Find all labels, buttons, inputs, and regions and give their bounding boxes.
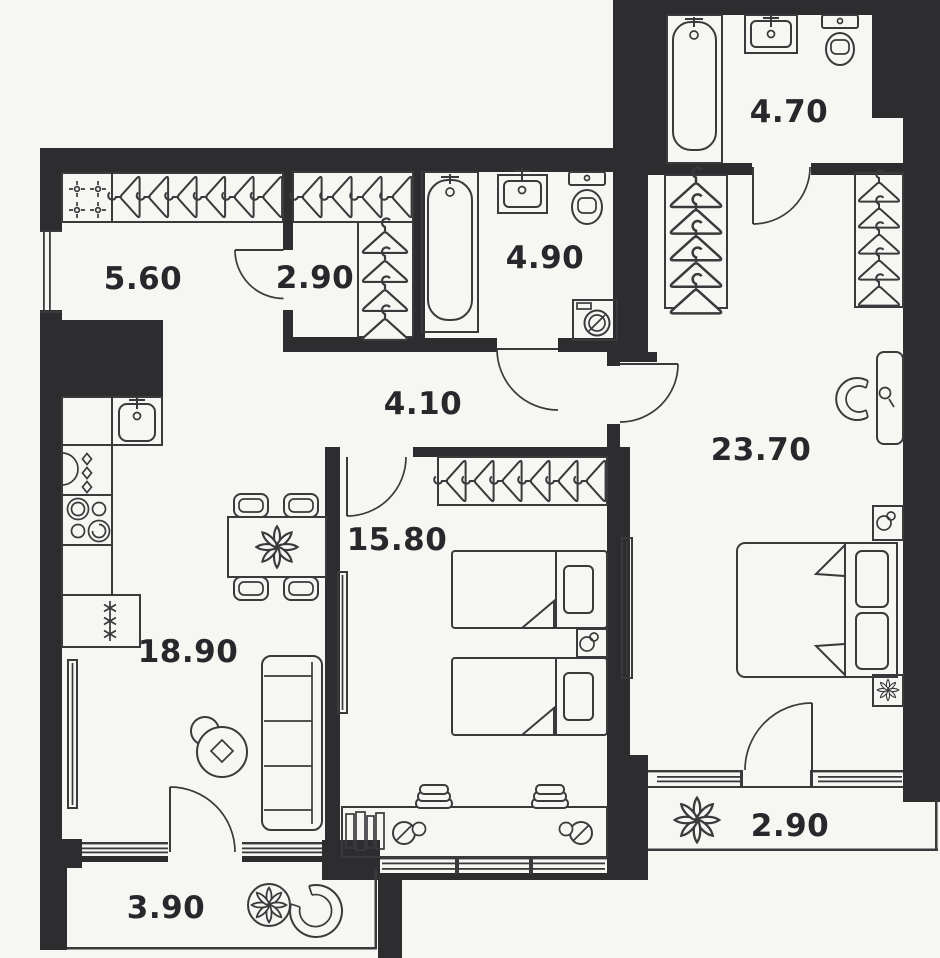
dining-chair bbox=[234, 577, 268, 600]
double-bed bbox=[737, 543, 897, 677]
room-label-hallway: 5.60 bbox=[104, 261, 183, 297]
room-label-bathroom: 4.90 bbox=[506, 240, 585, 276]
plant-flower-icon bbox=[252, 888, 287, 923]
sofa bbox=[262, 656, 322, 830]
dining-chair bbox=[284, 494, 318, 517]
room-label-balcony: 3.90 bbox=[127, 890, 206, 926]
plant-flower-icon bbox=[256, 526, 297, 567]
room-label-kitchen-living: 18.90 bbox=[138, 634, 239, 670]
room-label-bathroom-2: 4.70 bbox=[750, 94, 829, 130]
room-label-bedroom: 15.80 bbox=[347, 522, 448, 558]
dining-chair bbox=[284, 577, 318, 600]
plant-flower-icon bbox=[675, 798, 720, 843]
dining-chair bbox=[234, 494, 268, 517]
floor-plan-canvas: 5.60 2.90 4.90 4.70 4.10 15.80 23.70 18.… bbox=[0, 0, 940, 958]
desk-chair bbox=[416, 785, 452, 808]
room-label-loggia: 2.90 bbox=[751, 808, 830, 844]
room-label-wardrobe: 2.90 bbox=[276, 260, 355, 296]
plant-flower-icon bbox=[877, 679, 898, 700]
room-label-master-bedroom: 23.70 bbox=[711, 432, 812, 468]
desk-chair bbox=[532, 785, 568, 808]
floor-plan: 5.60 2.90 4.90 4.70 4.10 15.80 23.70 18.… bbox=[0, 0, 940, 958]
single-bed-2 bbox=[452, 658, 607, 735]
single-bed-1 bbox=[452, 551, 607, 628]
room-label-corridor: 4.10 bbox=[384, 386, 463, 422]
